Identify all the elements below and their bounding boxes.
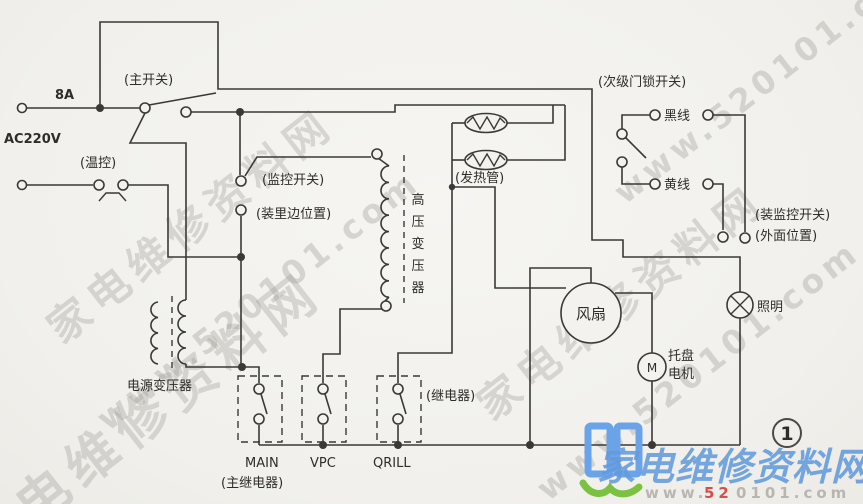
motor-m-label: M bbox=[647, 361, 657, 375]
black-wire-terminal bbox=[650, 110, 660, 120]
tray-motor-symbol: M bbox=[638, 353, 666, 381]
hvt-char: 高 bbox=[411, 192, 424, 208]
main-relay-label: MAIN bbox=[245, 456, 279, 471]
door-switch-pivot bbox=[617, 157, 627, 167]
circuit-diagram: 家电维修资料网 家电维修资料网 www.520101.com 家电维修资料网 w… bbox=[0, 0, 863, 504]
monitor-mount-terminal bbox=[740, 233, 750, 243]
site-url-www: www. bbox=[645, 484, 707, 502]
heater-tube-symbols bbox=[465, 114, 507, 170]
lamp-label: 照明 bbox=[757, 300, 783, 315]
page-marker-number: 1 bbox=[780, 423, 793, 445]
inside-position-label: (装里边位置) bbox=[256, 207, 331, 222]
lamp-symbol bbox=[727, 292, 753, 318]
monitor-switch-contact bbox=[236, 176, 246, 186]
hvt-char: 器 bbox=[411, 281, 424, 296]
schematic-page: 家电维修资料网 家电维修资料网 www.520101.com 家电维修资料网 w… bbox=[0, 0, 863, 504]
relay-contacts bbox=[238, 376, 421, 442]
vpc-relay-label: VPC bbox=[310, 456, 336, 471]
site-url-rest: 0101.com bbox=[736, 484, 850, 502]
grill-relay-label: QRILL bbox=[373, 456, 411, 471]
hv-transformer-label: 高 压 变 压 器 bbox=[411, 192, 424, 296]
outside-position-label: (外面位置) bbox=[755, 229, 817, 244]
tray-motor-label: 托盘 bbox=[668, 348, 694, 364]
hv-transformer-terminal bbox=[372, 149, 382, 159]
monitor-mount-label: (装监控开关) bbox=[755, 208, 830, 223]
yellow-wire-terminal bbox=[703, 179, 713, 189]
hvt-char: 压 bbox=[411, 259, 424, 274]
supply-terminal-neutral bbox=[18, 181, 27, 190]
door-switch-label: (次级门锁开关) bbox=[598, 74, 686, 90]
fan-label: 风扇 bbox=[576, 305, 606, 323]
supply-voltage-label: AC220V bbox=[4, 132, 61, 147]
power-transformer-label: 电源变压器 bbox=[127, 378, 192, 394]
site-name-text: 家电维修资料网 bbox=[597, 445, 863, 489]
tray-motor-label: 电机 bbox=[668, 367, 694, 382]
black-wire-terminal bbox=[703, 110, 713, 120]
main-switch-label: (主开关) bbox=[124, 73, 173, 88]
yellow-wire-label: 黄线 bbox=[664, 178, 690, 193]
monitor-switch-contact bbox=[236, 205, 246, 215]
thermostat-contact bbox=[118, 180, 128, 190]
door-switch-pivot bbox=[617, 129, 627, 139]
yellow-wire-terminal bbox=[650, 179, 660, 189]
watermark-url: www.520101.com bbox=[607, 0, 863, 211]
thermostat-label: (温控) bbox=[80, 156, 116, 171]
hvt-char: 压 bbox=[411, 215, 424, 230]
monitor-switch-label: (监控开关) bbox=[262, 173, 324, 188]
site-url-52: 52 bbox=[704, 484, 733, 502]
main-switch-contact bbox=[181, 107, 191, 117]
heater-label: (发热管) bbox=[455, 170, 504, 186]
page-marker: 1 bbox=[773, 419, 801, 447]
hv-transformer-terminal bbox=[381, 301, 391, 311]
supply-terminal-live bbox=[18, 104, 27, 113]
main-relay-note-label: (主继电器) bbox=[221, 476, 283, 491]
thermostat-contact bbox=[94, 180, 104, 190]
fuse-rating-label: 8A bbox=[55, 88, 74, 103]
main-switch-contact bbox=[140, 103, 150, 113]
main-switch-blade bbox=[149, 93, 216, 105]
black-wire-label: 黑线 bbox=[664, 109, 690, 124]
hvt-char: 变 bbox=[411, 236, 424, 252]
monitor-mount-terminal bbox=[718, 232, 728, 242]
relay-note-label: (继电器) bbox=[426, 389, 475, 404]
fan-symbol: 风扇 bbox=[561, 283, 621, 343]
